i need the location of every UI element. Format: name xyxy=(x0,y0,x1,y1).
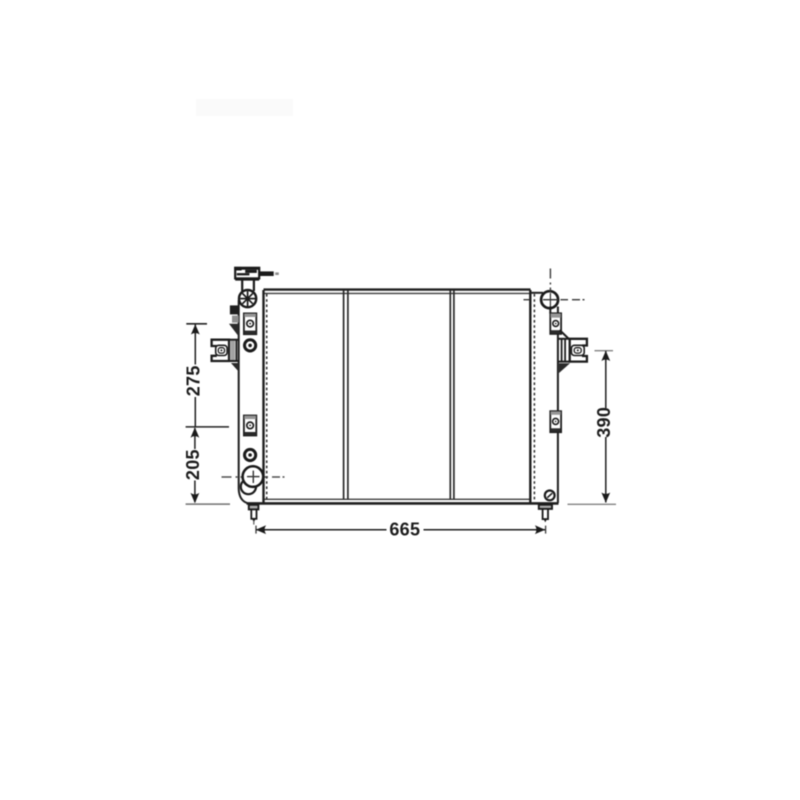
svg-text:665: 665 xyxy=(389,520,420,540)
svg-text:205: 205 xyxy=(183,449,203,480)
svg-text:275: 275 xyxy=(184,365,204,396)
svg-text:390: 390 xyxy=(594,407,614,438)
